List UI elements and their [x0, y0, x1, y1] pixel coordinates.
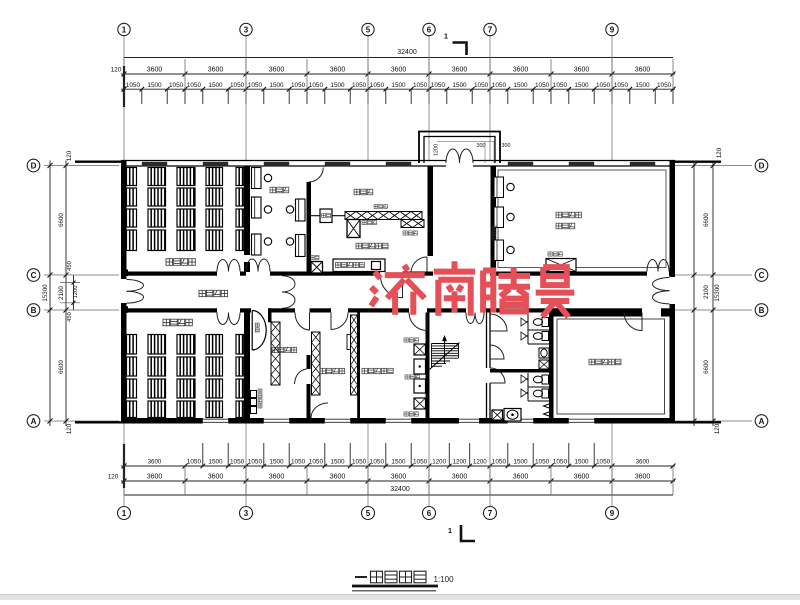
svg-text:1: 1: [444, 32, 448, 41]
svg-text:1050: 1050: [309, 459, 324, 466]
svg-text:1050: 1050: [535, 459, 550, 466]
svg-text:3600: 3600: [452, 474, 468, 481]
svg-text:1050: 1050: [492, 82, 507, 89]
svg-text:1500: 1500: [513, 82, 528, 89]
svg-text:120: 120: [714, 423, 721, 434]
svg-text:1500: 1500: [513, 459, 528, 466]
svg-text:3600: 3600: [269, 67, 285, 74]
svg-text:1500: 1500: [147, 82, 162, 89]
svg-text:1050: 1050: [596, 82, 611, 89]
svg-text:120: 120: [66, 423, 73, 434]
svg-text:1050: 1050: [230, 459, 245, 466]
svg-text:3600: 3600: [147, 67, 163, 74]
svg-text:1:100: 1:100: [434, 575, 455, 584]
svg-text:1050: 1050: [352, 82, 367, 89]
svg-text:1500: 1500: [269, 459, 284, 466]
svg-text:1050: 1050: [553, 459, 568, 466]
svg-text:9: 9: [610, 509, 615, 518]
svg-text:1050: 1050: [431, 82, 446, 89]
svg-text:6: 6: [427, 25, 432, 34]
svg-text:32400: 32400: [397, 49, 417, 56]
svg-text:1050: 1050: [657, 82, 672, 89]
svg-text:2100: 2100: [58, 286, 65, 300]
svg-text:B: B: [31, 306, 37, 315]
svg-text:450: 450: [67, 261, 73, 271]
svg-text:120: 120: [108, 474, 119, 481]
svg-text:1050: 1050: [187, 82, 202, 89]
svg-text:6600: 6600: [58, 360, 65, 374]
svg-text:1050: 1050: [248, 82, 263, 89]
svg-text:1050: 1050: [187, 459, 202, 466]
svg-text:1: 1: [122, 509, 127, 518]
svg-text:6: 6: [427, 509, 432, 518]
svg-text:C: C: [31, 271, 37, 280]
svg-text:A: A: [759, 417, 765, 426]
svg-text:1200: 1200: [434, 144, 440, 156]
svg-text:1050: 1050: [248, 459, 263, 466]
svg-text:B: B: [759, 306, 765, 315]
svg-text:1: 1: [448, 526, 452, 535]
svg-text:3600: 3600: [635, 474, 651, 481]
svg-text:3600: 3600: [148, 459, 162, 466]
svg-text:1500: 1500: [330, 459, 345, 466]
svg-text:1050: 1050: [370, 82, 385, 89]
svg-text:1500: 1500: [208, 459, 223, 466]
svg-text:6600: 6600: [703, 213, 710, 227]
svg-text:1050: 1050: [309, 82, 324, 89]
svg-text:1500: 1500: [208, 82, 223, 89]
svg-text:1500: 1500: [330, 82, 345, 89]
svg-text:32400: 32400: [390, 486, 410, 493]
svg-text:120: 120: [66, 150, 73, 161]
svg-text:3: 3: [244, 509, 249, 518]
svg-text:300: 300: [477, 143, 486, 149]
svg-text:1050: 1050: [413, 459, 428, 466]
svg-text:3600: 3600: [574, 67, 590, 74]
svg-text:6600: 6600: [703, 360, 710, 374]
svg-text:3600: 3600: [391, 474, 407, 481]
svg-text:D: D: [759, 161, 765, 170]
svg-text:1: 1: [122, 25, 127, 34]
svg-text:5: 5: [366, 25, 371, 34]
svg-text:C: C: [759, 271, 765, 280]
svg-text:D: D: [31, 161, 37, 170]
svg-text:2100: 2100: [703, 285, 710, 299]
svg-text:3600: 3600: [635, 67, 651, 74]
svg-text:3600: 3600: [147, 474, 163, 481]
svg-text:120: 120: [111, 67, 122, 74]
svg-text:1050: 1050: [474, 82, 489, 89]
svg-text:1050: 1050: [614, 82, 629, 89]
svg-text:1050: 1050: [596, 459, 611, 466]
svg-text:120: 120: [716, 147, 723, 158]
svg-text:3600: 3600: [208, 474, 224, 481]
svg-text:9: 9: [610, 25, 615, 34]
svg-text:1050: 1050: [230, 82, 245, 89]
svg-text:1050: 1050: [535, 82, 550, 89]
svg-text:1050: 1050: [370, 459, 385, 466]
svg-text:1500: 1500: [574, 459, 589, 466]
svg-text:1050: 1050: [553, 82, 568, 89]
svg-text:1200: 1200: [453, 459, 467, 466]
svg-text:3600: 3600: [513, 474, 529, 481]
svg-text:1050: 1050: [291, 82, 306, 89]
svg-text:3600: 3600: [574, 474, 590, 481]
svg-text:450: 450: [67, 312, 73, 322]
svg-text:1500: 1500: [635, 82, 650, 89]
svg-text:1050: 1050: [492, 459, 507, 466]
svg-text:1050: 1050: [291, 459, 306, 466]
svg-text:6600: 6600: [58, 213, 65, 227]
svg-text:3600: 3600: [330, 67, 346, 74]
svg-text:3600: 3600: [452, 67, 468, 74]
svg-text:3600: 3600: [269, 474, 285, 481]
svg-text:1500: 1500: [391, 82, 406, 89]
svg-text:1500: 1500: [391, 459, 406, 466]
svg-text:7: 7: [488, 25, 493, 34]
svg-text:1500: 1500: [574, 82, 589, 89]
svg-text:1050: 1050: [413, 82, 428, 89]
svg-text:A: A: [31, 417, 37, 426]
svg-text:1050: 1050: [169, 82, 184, 89]
svg-text:3600: 3600: [513, 67, 529, 74]
svg-text:3600: 3600: [330, 474, 346, 481]
svg-text:3600: 3600: [391, 67, 407, 74]
svg-text:1200: 1200: [73, 286, 79, 299]
svg-text:1050: 1050: [352, 459, 367, 466]
svg-text:15300: 15300: [42, 284, 49, 302]
svg-text:3: 3: [244, 25, 249, 34]
svg-text:1050: 1050: [126, 82, 141, 89]
svg-text:15300: 15300: [714, 284, 721, 302]
svg-text:1500: 1500: [452, 82, 467, 89]
svg-text:3600: 3600: [208, 67, 224, 74]
svg-text:3600: 3600: [636, 459, 650, 466]
svg-text:1500: 1500: [269, 82, 284, 89]
svg-text:1200: 1200: [473, 459, 487, 466]
svg-text:300: 300: [502, 143, 511, 149]
svg-text:5: 5: [366, 509, 371, 518]
svg-text:1200: 1200: [432, 459, 446, 466]
svg-text:7: 7: [488, 509, 493, 518]
